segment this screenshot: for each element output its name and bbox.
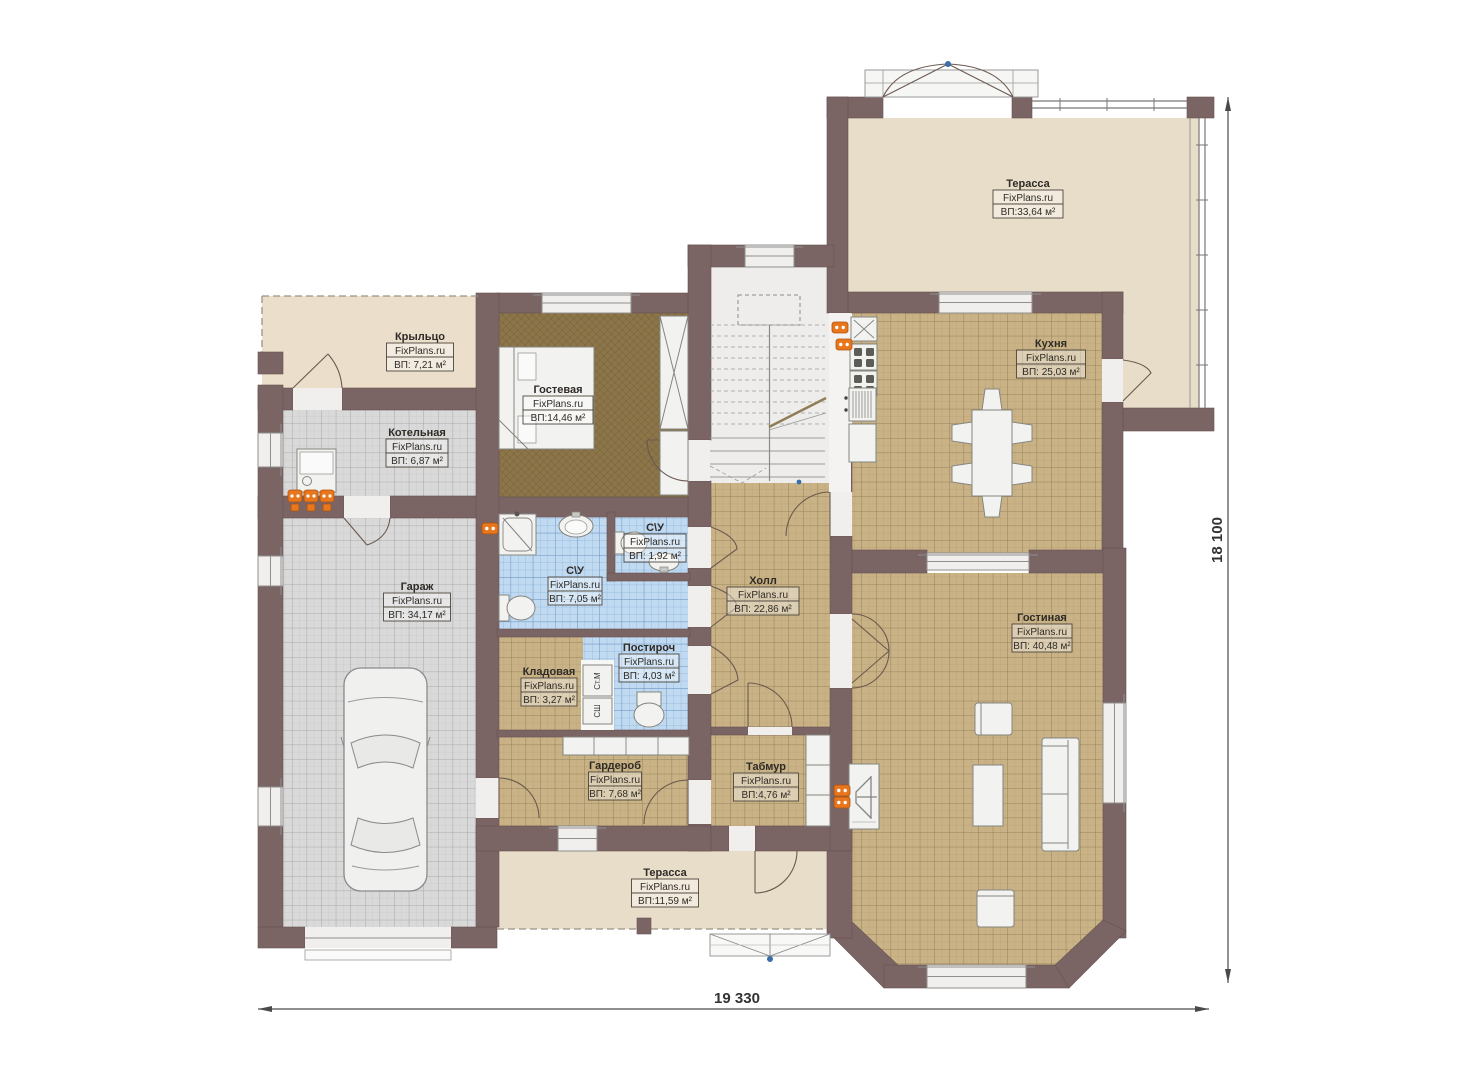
svg-text:Гостиная: Гостиная	[1017, 612, 1067, 624]
svg-text:FixPlans.ru: FixPlans.ru	[590, 775, 640, 786]
svg-text:FixPlans.ru: FixPlans.ru	[524, 681, 574, 692]
svg-text:ВП:11,59 м²: ВП:11,59 м²	[638, 896, 693, 907]
svg-text:FixPlans.ru: FixPlans.ru	[640, 882, 690, 893]
svg-text:Терасса: Терасса	[1006, 178, 1050, 190]
svg-text:FixPlans.ru: FixPlans.ru	[1003, 193, 1053, 204]
svg-text:Кладовая: Кладовая	[523, 666, 576, 678]
svg-text:FixPlans.ru: FixPlans.ru	[738, 590, 788, 601]
svg-text:ВП: 40,48 м²: ВП: 40,48 м²	[1013, 641, 1071, 652]
svg-text:Табмур: Табмур	[746, 761, 786, 773]
svg-text:FixPlans.ru: FixPlans.ru	[624, 657, 674, 668]
svg-text:Гостевая: Гостевая	[533, 384, 582, 396]
svg-text:Котельная: Котельная	[388, 427, 446, 439]
svg-text:Холл: Холл	[749, 575, 777, 587]
svg-text:19 330: 19 330	[714, 990, 760, 1007]
svg-text:ВП: 34,17 м²: ВП: 34,17 м²	[388, 610, 446, 621]
svg-text:ВП: 7,05 м²: ВП: 7,05 м²	[549, 594, 602, 605]
svg-text:ВП: 7,68 м²: ВП: 7,68 м²	[589, 789, 642, 800]
svg-text:Гардероб: Гардероб	[589, 760, 641, 772]
svg-text:FixPlans.ru: FixPlans.ru	[1026, 353, 1076, 364]
svg-text:FixPlans.ru: FixPlans.ru	[741, 776, 791, 787]
svg-text:ВП: 7,21 м²: ВП: 7,21 м²	[394, 360, 447, 371]
svg-text:С\У: С\У	[646, 522, 664, 534]
svg-text:FixPlans.ru: FixPlans.ru	[550, 580, 600, 591]
svg-text:ВП: 1,92 м²: ВП: 1,92 м²	[629, 551, 682, 562]
svg-text:ВП: 6,87 м²: ВП: 6,87 м²	[391, 456, 444, 467]
svg-text:С\У: С\У	[566, 565, 584, 577]
svg-text:Ст.М: Ст.М	[593, 672, 602, 690]
svg-text:FixPlans.ru: FixPlans.ru	[392, 596, 442, 607]
svg-text:FixPlans.ru: FixPlans.ru	[392, 442, 442, 453]
svg-text:FixPlans.ru: FixPlans.ru	[1017, 627, 1067, 638]
svg-text:Терасса: Терасса	[643, 867, 687, 879]
svg-text:ВП: 22,86 м²: ВП: 22,86 м²	[734, 604, 792, 615]
svg-text:Гараж: Гараж	[401, 581, 434, 593]
svg-text:FixPlans.ru: FixPlans.ru	[533, 399, 583, 410]
svg-text:FixPlans.ru: FixPlans.ru	[395, 346, 445, 357]
svg-text:ВП: 3,27 м²: ВП: 3,27 м²	[523, 695, 576, 706]
svg-text:Кухня: Кухня	[1035, 338, 1067, 350]
svg-text:Крыльцо: Крыльцо	[395, 331, 445, 343]
svg-text:ВП:33,64 м²: ВП:33,64 м²	[1001, 207, 1056, 218]
svg-text:ВП:14,46 м²: ВП:14,46 м²	[531, 413, 586, 424]
svg-text:FixPlans.ru: FixPlans.ru	[630, 537, 680, 548]
svg-text:Постироч: Постироч	[623, 642, 675, 654]
svg-text:СШ: СШ	[593, 704, 602, 717]
svg-text:ВП: 25,03 м²: ВП: 25,03 м²	[1022, 367, 1080, 378]
svg-text:ВП: 4,03 м²: ВП: 4,03 м²	[623, 671, 676, 682]
svg-text:18 100: 18 100	[1209, 517, 1226, 563]
svg-text:ВП:4,76 м²: ВП:4,76 м²	[741, 790, 791, 801]
